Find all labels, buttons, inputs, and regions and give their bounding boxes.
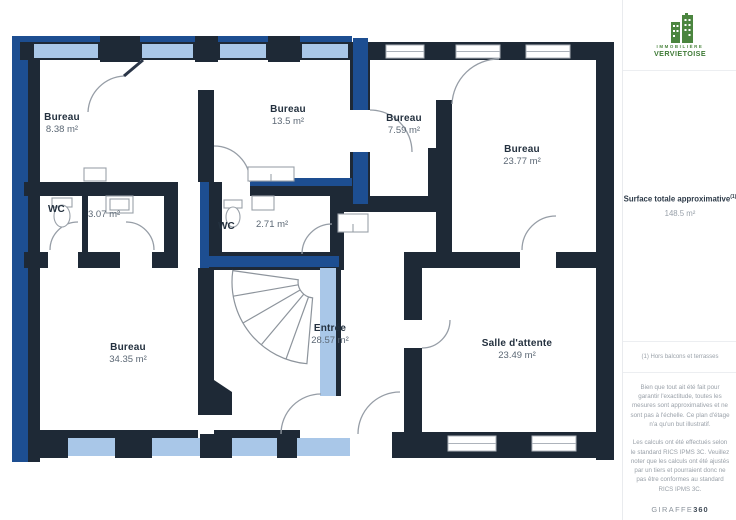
brand-name: GIRAFFE [651, 505, 693, 514]
footnote-text: (1) Hors balcons et terrasses [641, 354, 718, 360]
room-area: 3.07 m² [88, 209, 120, 220]
info-sidebar: IMMOBILIÈRE VERVIETOISE Surface totale a… [622, 0, 736, 520]
legal-section: Bien que tout ait été fait pour garantir… [623, 373, 736, 520]
disclaimer-paragraph: Bien que tout ait été fait pour garantir… [630, 383, 730, 429]
logo-text-bottom: VERVIETOISE [654, 49, 706, 58]
buildings-icon [660, 13, 700, 43]
floorplan-page: Bureau 8.38 m² Bureau 13.5 m² Bureau 7.5… [0, 0, 736, 520]
surface-footnote-marker: (1) [730, 194, 736, 200]
brand-suffix: 360 [693, 505, 708, 514]
room-name: WC [48, 204, 65, 215]
surface-label-text: Surface totale approximative [624, 195, 731, 204]
logo-section: IMMOBILIÈRE VERVIETOISE [623, 0, 736, 71]
room-name: WC [218, 221, 235, 232]
agency-logo: IMMOBILIÈRE VERVIETOISE [654, 13, 706, 58]
disclaimer-paragraph: Les calculs ont été effectués selon le s… [630, 438, 730, 494]
giraffe360-brand: GIRAFFE360 [651, 505, 708, 514]
surface-section: Surface totale approximative(1) 148.5 m² [623, 71, 736, 342]
surface-label: Surface totale approximative(1) [624, 194, 736, 205]
plan-background [12, 36, 614, 462]
surface-value: 148.5 m² [665, 209, 696, 218]
footnote-section: (1) Hors balcons et terrasses [623, 342, 736, 373]
room-area: 2.71 m² [256, 219, 288, 230]
